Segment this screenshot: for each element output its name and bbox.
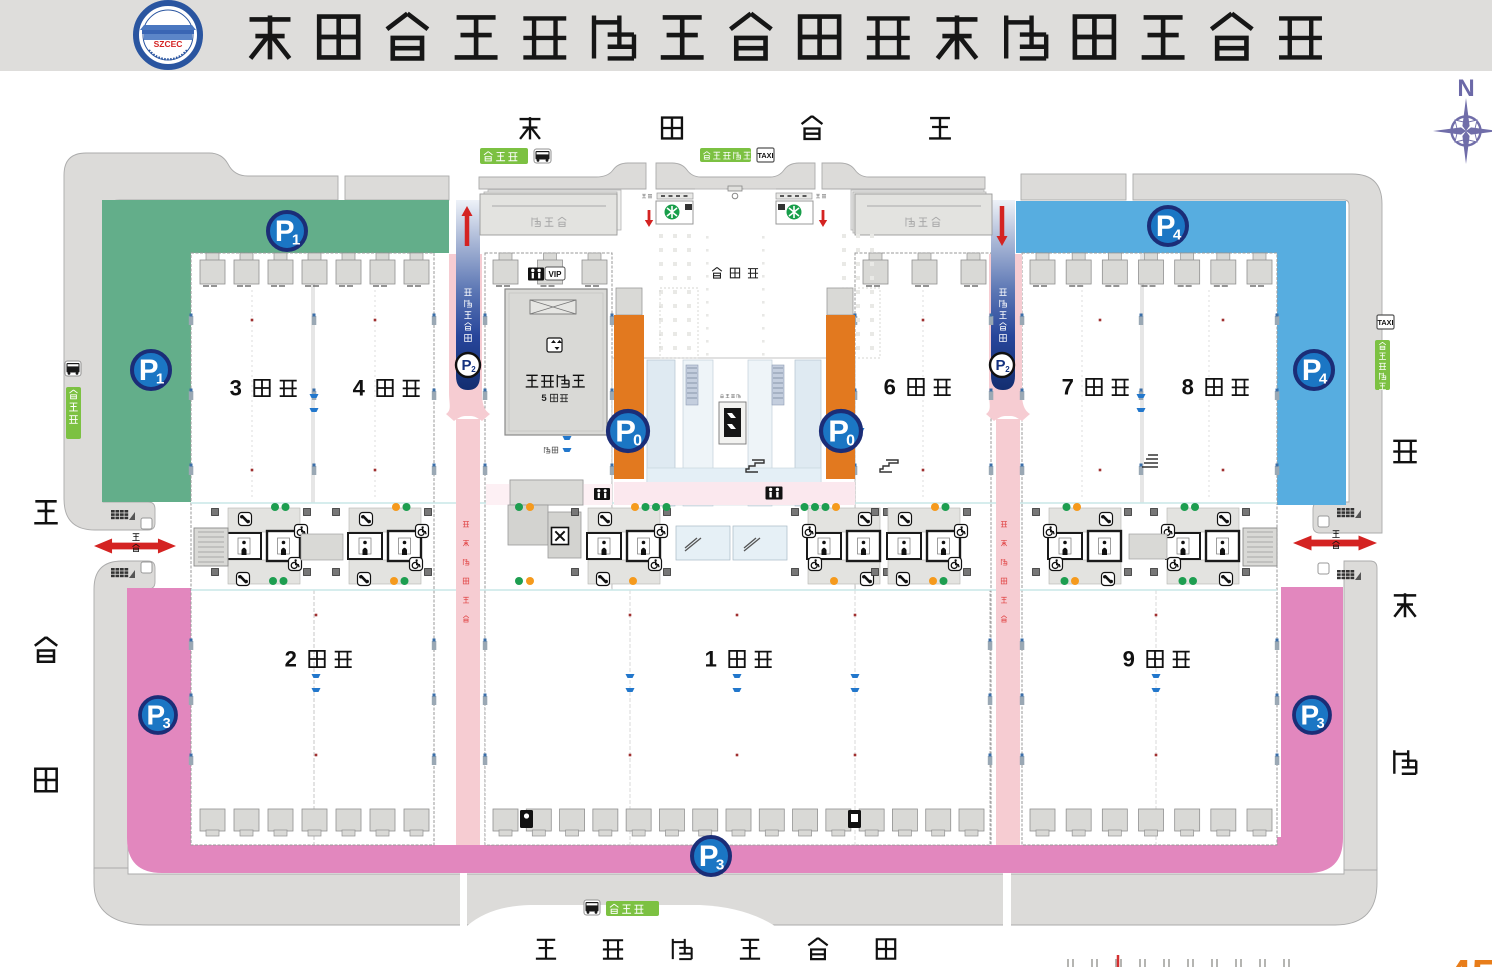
svg-text:6: 6	[884, 375, 896, 400]
svg-text:5: 5	[541, 393, 547, 404]
svg-text:SZCEC: SZCEC	[154, 39, 183, 49]
svg-text:1: 1	[292, 232, 301, 249]
svg-text:2: 2	[285, 647, 297, 672]
svg-text:P: P	[461, 357, 471, 374]
svg-text:3: 3	[230, 376, 242, 401]
svg-text:8: 8	[1182, 375, 1194, 400]
svg-text:4: 4	[1319, 371, 1328, 388]
svg-text:TAXI: TAXI	[757, 151, 773, 160]
svg-text:2: 2	[471, 365, 476, 374]
svg-text:3: 3	[716, 857, 724, 874]
svg-text:1: 1	[705, 647, 717, 672]
svg-text:4: 4	[1173, 227, 1182, 244]
svg-text:7: 7	[1062, 375, 1074, 400]
svg-text:0: 0	[633, 432, 642, 449]
svg-text:2: 2	[1005, 365, 1010, 374]
svg-text:4: 4	[353, 376, 366, 401]
svg-text:TAXI: TAXI	[1377, 318, 1393, 327]
svg-text:1: 1	[156, 371, 165, 388]
svg-text:3: 3	[1317, 716, 1325, 732]
svg-text:3: 3	[163, 716, 171, 732]
svg-text:9: 9	[1123, 647, 1135, 672]
svg-text:45: 45	[1447, 951, 1492, 967]
svg-text:P: P	[995, 357, 1005, 374]
svg-text:0: 0	[846, 432, 855, 449]
svg-text:VIP: VIP	[549, 270, 563, 279]
svg-text:N: N	[1457, 75, 1474, 102]
